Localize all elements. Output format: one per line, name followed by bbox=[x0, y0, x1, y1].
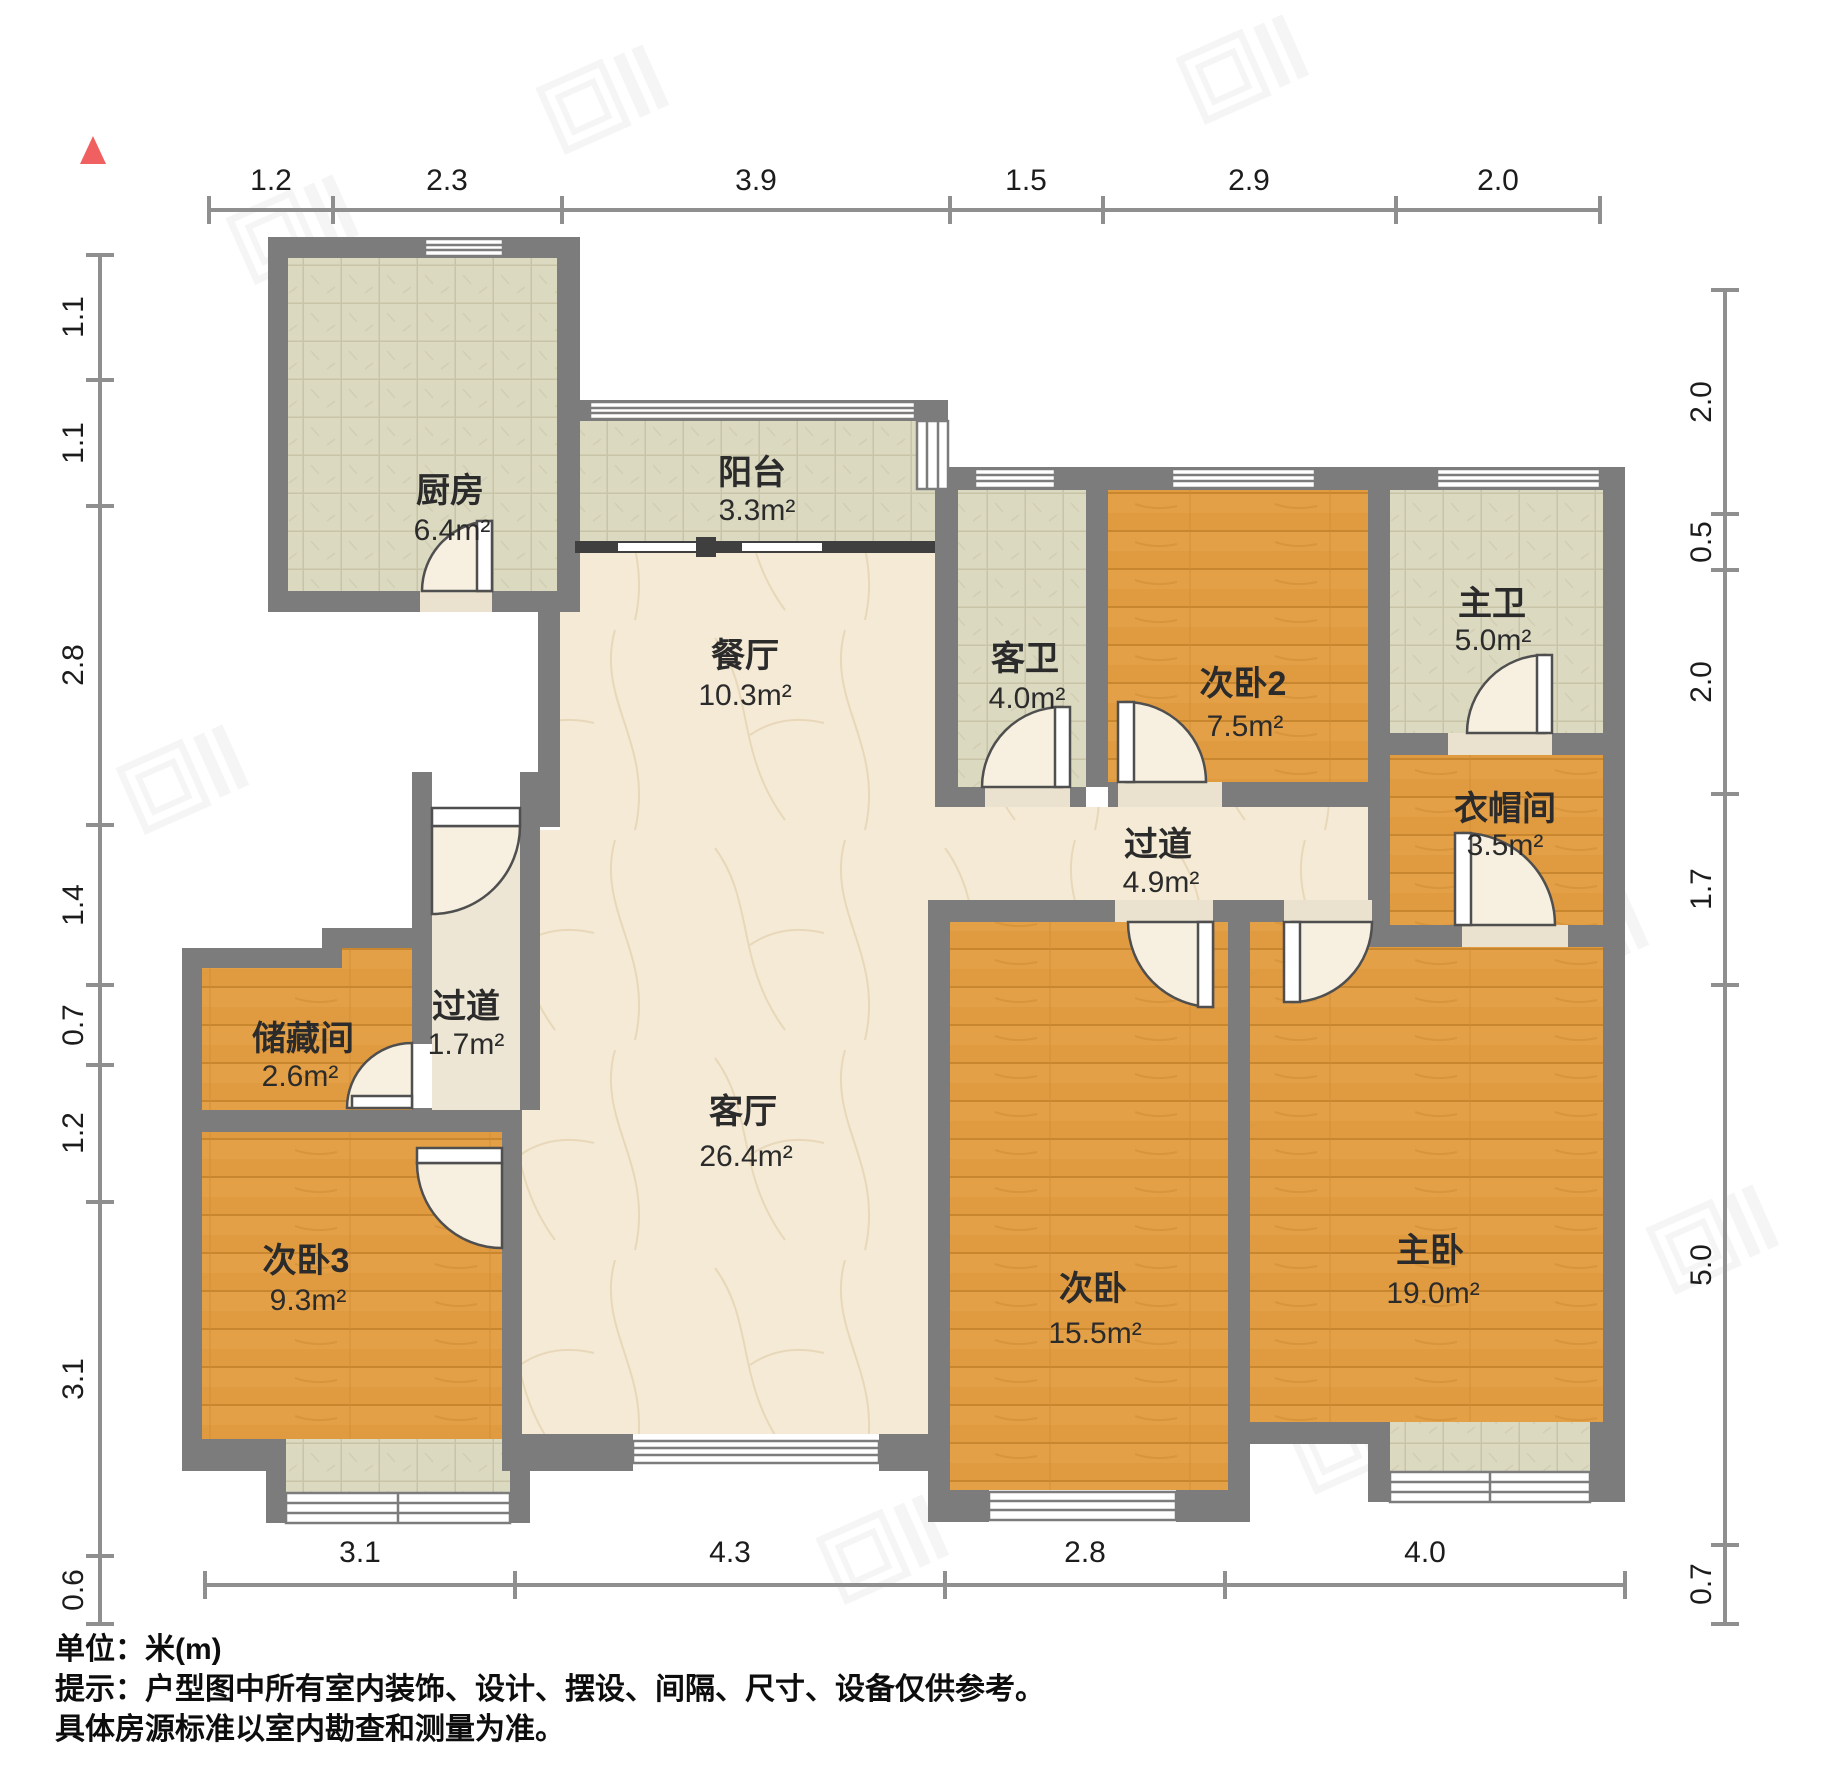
dim-bottom-3: 4.0 bbox=[1404, 1536, 1446, 1569]
dining-area: 10.3m² bbox=[698, 679, 791, 712]
dim-top-4: 2.9 bbox=[1228, 164, 1270, 197]
vestibule-area: 1.7m² bbox=[428, 1028, 505, 1061]
bedroom1-window bbox=[989, 1492, 1176, 1520]
dim-line-top bbox=[209, 196, 1600, 224]
dim-left-0: 1.1 bbox=[57, 296, 90, 338]
master-bath-area: 5.0m² bbox=[1455, 624, 1532, 657]
dim-right-4: 5.0 bbox=[1685, 1244, 1718, 1286]
master-bath-label: 主卫 bbox=[1458, 585, 1526, 623]
footer-notes: 单位：米(m) 提示：户型图中所有室内装饰、设计、摆设、间隔、尺寸、设备仅供参考… bbox=[55, 1630, 1045, 1750]
dim-top-1: 2.3 bbox=[426, 164, 468, 197]
dim-left-5: 1.2 bbox=[57, 1112, 90, 1154]
dim-left-7: 0.6 bbox=[57, 1569, 90, 1611]
dim-top-2: 3.9 bbox=[735, 164, 777, 197]
dim-left-4: 0.7 bbox=[57, 1004, 90, 1046]
dim-right-3: 1.7 bbox=[1685, 868, 1718, 910]
floorplan-page: 厨房 6.4m² 阳台 3.3m² 餐厅 10.3m² 客卫 4.0m² 次卧2… bbox=[0, 0, 1828, 1772]
master-baywindow-sill bbox=[1390, 1422, 1590, 1472]
vestibule-label: 过道 bbox=[432, 988, 500, 1026]
guest-bath-label: 客卫 bbox=[991, 639, 1059, 678]
footer-unit: 单位：米(m) bbox=[55, 1630, 1045, 1670]
kitchen-label: 厨房 bbox=[416, 472, 484, 510]
hallway-label: 过道 bbox=[1124, 826, 1192, 864]
dim-line-bottom bbox=[205, 1571, 1625, 1599]
guest-bath-window bbox=[975, 469, 1055, 488]
kitchen-window bbox=[425, 239, 503, 256]
footer-tip-line1: 提示：户型图中所有室内装饰、设计、摆设、间隔、尺寸、设备仅供参考。 bbox=[55, 1670, 1045, 1710]
bedroom1-area: 15.5m² bbox=[1048, 1317, 1141, 1350]
dim-bottom-0: 3.1 bbox=[339, 1536, 381, 1569]
dim-right-0: 2.0 bbox=[1685, 381, 1718, 423]
dim-line-left bbox=[86, 255, 114, 1624]
living-window bbox=[633, 1441, 879, 1463]
living-label: 客厅 bbox=[709, 1092, 777, 1131]
dim-left-2: 2.8 bbox=[57, 644, 90, 686]
dim-bottom-1: 4.3 bbox=[709, 1536, 751, 1569]
bedroom1-label: 次卧 bbox=[1059, 1270, 1127, 1308]
bedroom1-floor bbox=[950, 922, 1228, 1490]
dim-right-2: 2.0 bbox=[1685, 661, 1718, 703]
hallway-area: 4.9m² bbox=[1123, 866, 1200, 899]
dim-right-1: 0.5 bbox=[1685, 521, 1718, 563]
footer-tip-line2: 具体房源标准以室内勘查和测量为准。 bbox=[55, 1710, 1045, 1750]
guest-bath-area: 4.0m² bbox=[989, 682, 1066, 715]
bedroom2-area: 7.5m² bbox=[1207, 710, 1284, 743]
master-bath-window bbox=[1437, 469, 1600, 488]
kitchen-area: 6.4m² bbox=[414, 514, 491, 547]
bedroom3-baywindow bbox=[286, 1493, 510, 1523]
master-baywindow bbox=[1390, 1472, 1590, 1502]
dim-line-right bbox=[1711, 290, 1739, 1624]
dim-left-3: 1.4 bbox=[57, 884, 90, 926]
bedroom3-area: 9.3m² bbox=[270, 1284, 347, 1317]
dim-bottom-2: 2.8 bbox=[1064, 1536, 1106, 1569]
bedroom3-baywindow-sill bbox=[286, 1439, 510, 1493]
dim-top-3: 1.5 bbox=[1005, 164, 1047, 197]
storage-label: 储藏间 bbox=[252, 1020, 354, 1058]
cloakroom-label: 衣帽间 bbox=[1454, 790, 1556, 828]
dim-left-1: 1.1 bbox=[57, 422, 90, 464]
bedroom2-window bbox=[1172, 469, 1315, 488]
bedroom3-label: 次卧3 bbox=[263, 1242, 350, 1280]
dim-top-5: 2.0 bbox=[1477, 164, 1519, 197]
master-bedroom-area: 19.0m² bbox=[1386, 1277, 1479, 1310]
dim-top-0: 1.2 bbox=[250, 164, 292, 197]
balcony-area: 3.3m² bbox=[719, 494, 796, 527]
storage-area: 2.6m² bbox=[262, 1060, 339, 1093]
cloakroom-area: 3.5m² bbox=[1467, 829, 1544, 862]
dim-right-5: 0.7 bbox=[1685, 1563, 1718, 1605]
balcony-label: 阳台 bbox=[718, 454, 786, 492]
dim-left-6: 3.1 bbox=[57, 1358, 90, 1400]
balcony-side-window bbox=[917, 421, 948, 489]
floorplan-svg: 厨房 6.4m² 阳台 3.3m² 餐厅 10.3m² 客卫 4.0m² 次卧2… bbox=[0, 0, 1828, 1772]
living-area: 26.4m² bbox=[699, 1140, 792, 1173]
master-bedroom-label: 主卧 bbox=[1396, 1232, 1464, 1270]
north-marker-icon bbox=[80, 136, 106, 164]
balcony-window bbox=[590, 402, 915, 419]
dining-label: 餐厅 bbox=[711, 637, 779, 675]
bedroom2-label: 次卧2 bbox=[1200, 665, 1287, 703]
